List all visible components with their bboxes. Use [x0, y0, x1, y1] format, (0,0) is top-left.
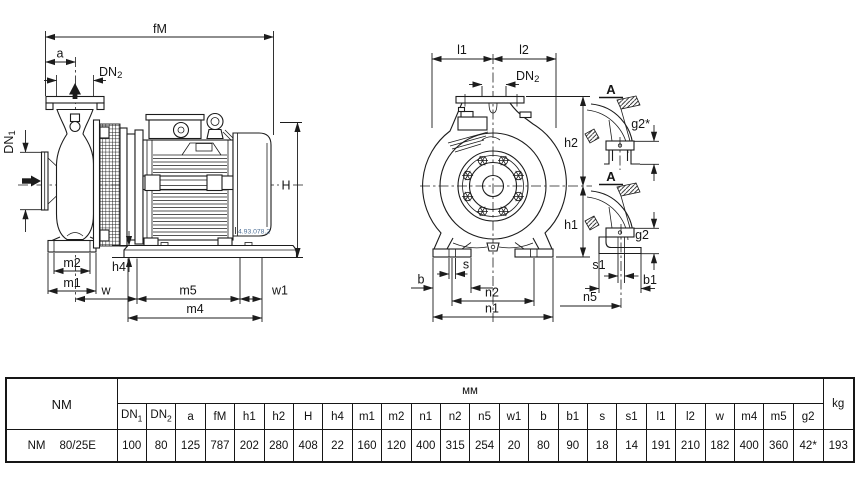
- col-header-b1: b1: [558, 404, 587, 430]
- dimension-table: NM мм kg DN1 DN2 a fM h1 h2 H h4 m1 m2 n…: [5, 377, 855, 463]
- section-detail-top: A g2*: [585, 82, 659, 181]
- col-header-m5: m5: [764, 404, 793, 430]
- catalog-page: 4.93.078.2 fM a DN2 DN1 H m2: [0, 0, 864, 488]
- value-a: 125: [176, 430, 205, 463]
- flow-arrow-out-stem: [73, 95, 78, 100]
- col-header-dn2: DN2: [146, 404, 175, 430]
- col-header-n1: n1: [411, 404, 440, 430]
- dim-label-l1: l1: [457, 43, 467, 57]
- flow-arrow-out: [69, 83, 81, 95]
- pump-dimension-drawing: 4.93.078.2 fM a DN2 DN1 H m2: [0, 0, 864, 372]
- end-view: l1 l2 DN2 h2 h1 b s n2 n1: [411, 43, 592, 322]
- col-header-n5: n5: [470, 404, 499, 430]
- value-s1: 14: [617, 430, 646, 463]
- dim-label-m2: m2: [63, 256, 80, 270]
- dim-label-s: s: [463, 258, 469, 272]
- col-header-w1: w1: [499, 404, 528, 430]
- col-header-h2: h2: [264, 404, 293, 430]
- value-g2: 42*: [793, 430, 823, 463]
- dim-label-fm: fM: [153, 22, 167, 36]
- table-weight-header: kg: [823, 378, 854, 430]
- dim-label-m5: m5: [179, 284, 196, 298]
- col-header-s: s: [588, 404, 617, 430]
- value-n5: 254: [470, 430, 499, 463]
- dim-label-b1: b1: [643, 273, 657, 287]
- dim-label-h4: h4: [112, 260, 126, 274]
- col-header-h: H: [293, 404, 322, 430]
- value-s: 18: [588, 430, 617, 463]
- fan-cover: [233, 133, 271, 236]
- table-unit-header: мм: [117, 378, 823, 404]
- dim-label-h1: h1: [564, 218, 578, 232]
- value-h1: 202: [235, 430, 264, 463]
- motor-base: [124, 246, 297, 258]
- dim-label-l2: l2: [519, 43, 529, 57]
- dim-label-h2: h2: [564, 136, 578, 150]
- value-n1: 400: [411, 430, 440, 463]
- lifting-eye: [207, 114, 233, 141]
- value-b: 80: [529, 430, 558, 463]
- value-l2: 210: [676, 430, 705, 463]
- col-header-n2: n2: [440, 404, 469, 430]
- dim-label-n2: n2: [485, 286, 499, 300]
- col-header-l2: l2: [676, 404, 705, 430]
- col-header-m1: m1: [352, 404, 381, 430]
- dim-label-m1: m1: [63, 276, 80, 290]
- value-m4: 400: [735, 430, 764, 463]
- end-view-dimensions: l1 l2 DN2 h2 h1: [432, 43, 590, 257]
- dim-label-n5: n5: [583, 290, 597, 304]
- col-header-l1: l1: [646, 404, 675, 430]
- dim-label-h: H: [281, 179, 290, 193]
- dim-label-m4: m4: [186, 302, 203, 316]
- col-header-g2: g2: [793, 404, 823, 430]
- col-header-m2: m2: [382, 404, 411, 430]
- table-column-header-row: DN1 DN2 a fM h1 h2 H h4 m1 m2 n1 n2 n5 w…: [6, 404, 854, 430]
- pump-casing-end: [423, 94, 567, 257]
- col-header-b: b: [529, 404, 558, 430]
- dim-label-a: a: [57, 47, 64, 61]
- col-header-m4: m4: [735, 404, 764, 430]
- col-header-dn1: DN1: [117, 404, 146, 430]
- value-fm: 787: [205, 430, 234, 463]
- dim-label-dn1: DN1: [2, 130, 18, 153]
- section-label-a-top: A: [606, 82, 616, 97]
- section-label-a-bottom: A: [606, 169, 616, 184]
- side-view: 4.93.078.2 fM a DN2 DN1 H m2: [2, 22, 303, 322]
- col-header-a: a: [176, 404, 205, 430]
- value-m1: 160: [352, 430, 381, 463]
- dim-label-w: w: [100, 284, 111, 298]
- table-row: NM80/25E 100 80 125 787 202 280 408 22 1…: [6, 430, 854, 463]
- flow-arrow-in-stem: [22, 178, 32, 183]
- dim-label-g2-star: g2*: [631, 117, 650, 131]
- col-header-fm: fM: [205, 404, 234, 430]
- dim-label-w1: w1: [271, 284, 288, 298]
- dim-label-n1: n1: [485, 302, 499, 316]
- value-w: 182: [705, 430, 734, 463]
- value-m5: 360: [764, 430, 793, 463]
- end-view-bottom-dimensions: b s n2 n1: [411, 258, 553, 323]
- value-dn2: 80: [146, 430, 175, 463]
- col-header-h1: h1: [235, 404, 264, 430]
- pump-model-cell: NM80/25E: [6, 430, 117, 463]
- value-weight: 193: [823, 430, 854, 463]
- value-m2: 120: [382, 430, 411, 463]
- col-header-s1: s1: [617, 404, 646, 430]
- value-h2: 280: [264, 430, 293, 463]
- col-header-w: w: [705, 404, 734, 430]
- table-series-header: NM: [6, 378, 117, 430]
- value-h4: 22: [323, 430, 352, 463]
- motor: [124, 114, 297, 258]
- dim-label-g2: g2: [635, 228, 649, 242]
- value-dn1: 100: [117, 430, 146, 463]
- value-l1: 191: [646, 430, 675, 463]
- drawing-part-number: 4.93.078.2: [238, 229, 270, 236]
- value-w1: 20: [499, 430, 528, 463]
- value-b1: 90: [558, 430, 587, 463]
- lantern-bracket: [94, 120, 144, 248]
- section-detail-bottom: A g2 s1 b1 n5: [560, 169, 659, 308]
- dim-label-s1: s1: [592, 258, 605, 272]
- dim-label-dn2-side: DN2: [99, 65, 122, 81]
- value-n2: 315: [440, 430, 469, 463]
- suction-flange: [22, 152, 57, 210]
- value-h: 408: [293, 430, 322, 463]
- dim-label-dn2-end: DN2: [516, 69, 539, 85]
- dim-label-b: b: [418, 273, 425, 287]
- col-header-h4: h4: [323, 404, 352, 430]
- terminal-box: [146, 115, 204, 139]
